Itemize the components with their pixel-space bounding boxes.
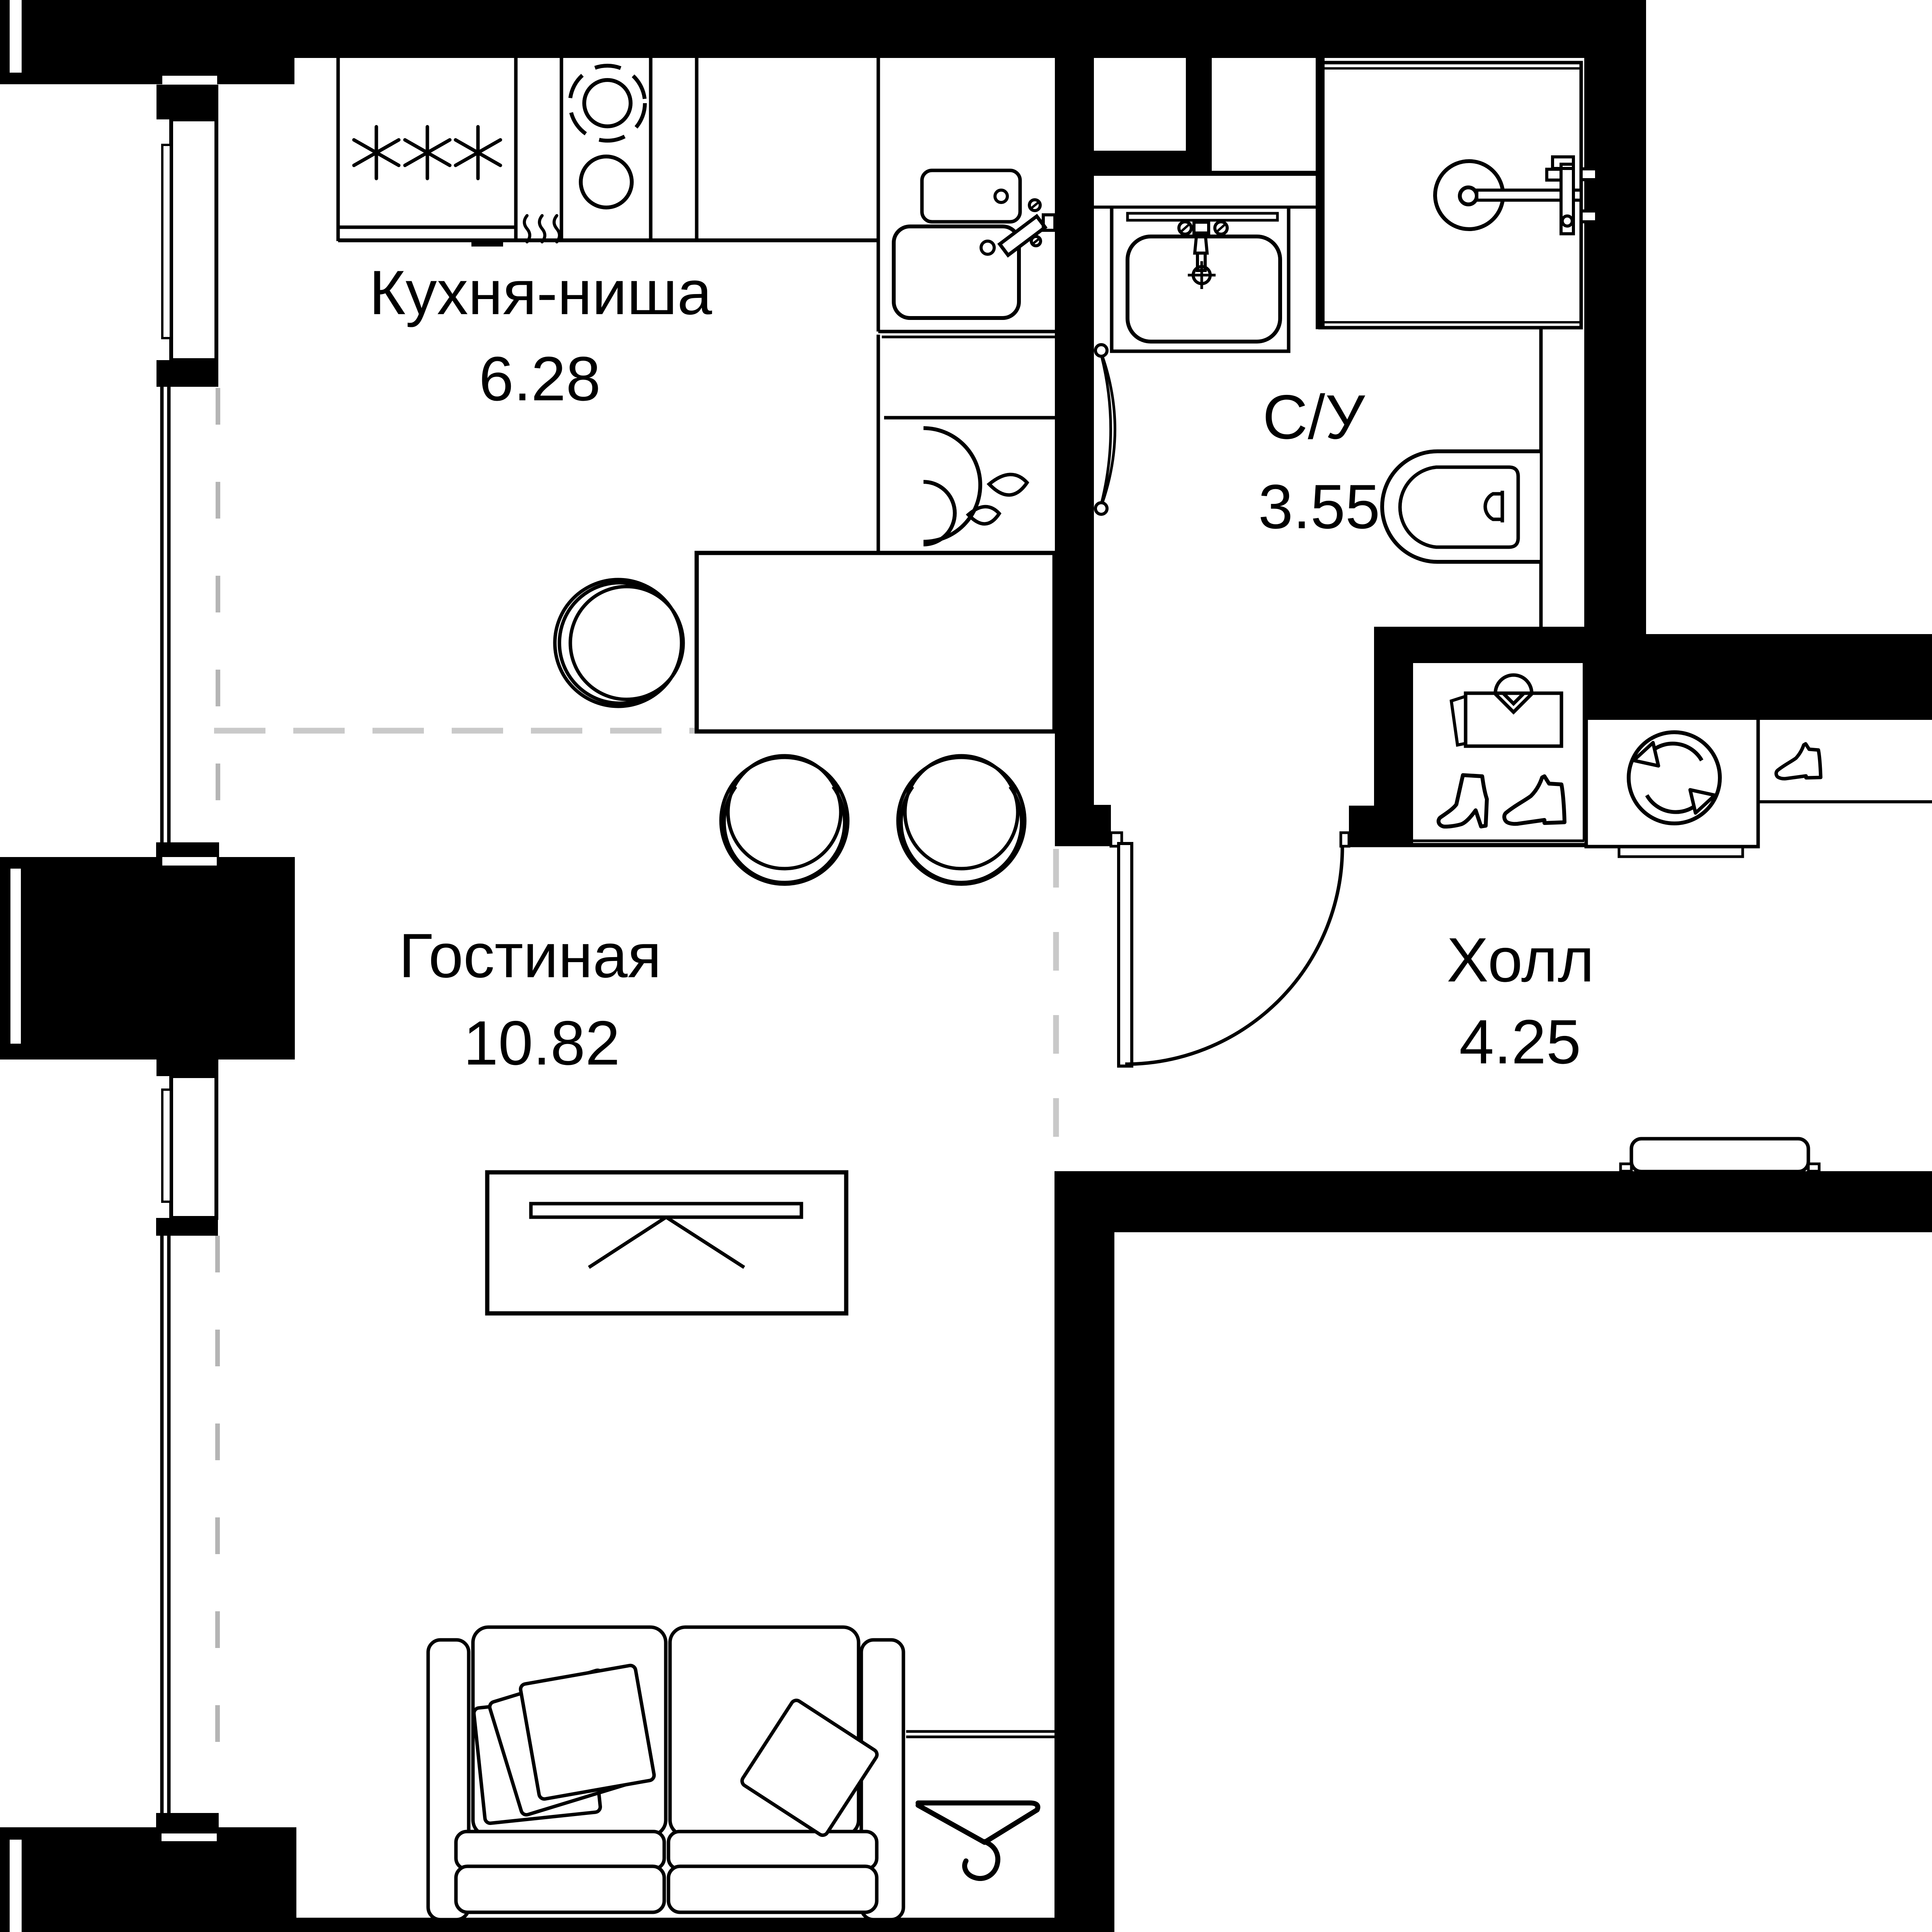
svg-text:Гостиная: Гостиная <box>399 921 662 991</box>
svg-text:Кухня-ниша: Кухня-ниша <box>369 258 712 328</box>
svg-text:Холл: Холл <box>1447 925 1594 995</box>
svg-text:С/У: С/У <box>1263 382 1366 452</box>
svg-text:10.82: 10.82 <box>463 1008 620 1078</box>
svg-text:4.25: 4.25 <box>1459 1007 1581 1077</box>
svg-text:3.55: 3.55 <box>1258 472 1380 542</box>
svg-text:6.28: 6.28 <box>479 344 600 414</box>
